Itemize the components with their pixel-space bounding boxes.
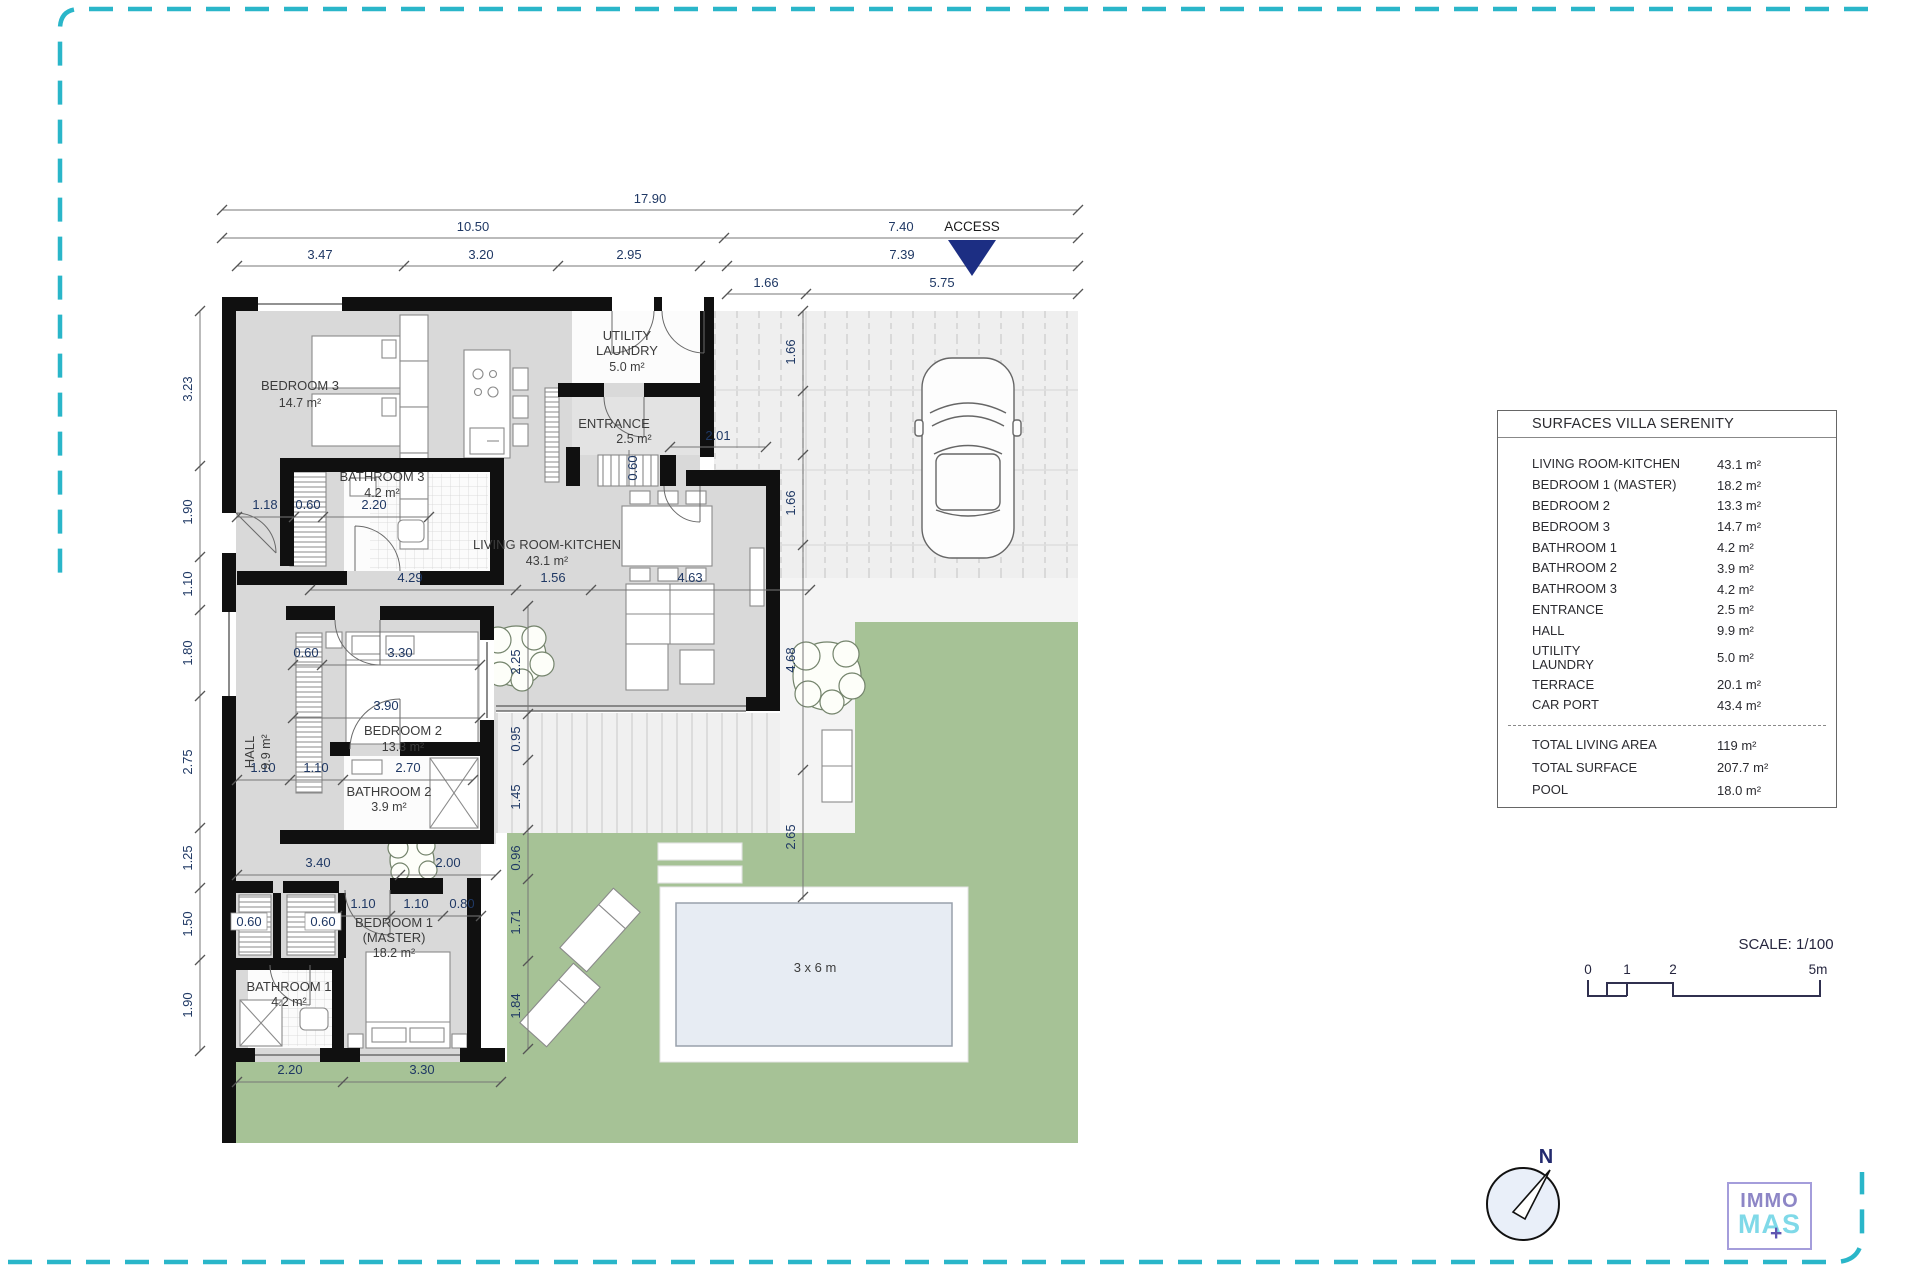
row-value: 43.4 m² [1717,698,1836,713]
dim-label: 3.30 [387,645,412,660]
dim-label: 0.60 [295,497,320,512]
dim-label: 4.68 [783,647,798,672]
bed-double [348,952,467,1048]
room-name: BATHROOM 1 [247,979,332,994]
dim-label: 4.63 [677,570,702,585]
dim-label: 1.66 [753,275,778,290]
table-row: ENTRANCE2.5 m² [1498,600,1836,621]
dim-label: 10.50 [457,219,490,234]
row-label: LIVING ROOM-KITCHEN [1498,457,1717,471]
dim-label: 4.29 [397,570,422,585]
row-value: 14.7 m² [1717,519,1836,534]
north-label: N [1539,1146,1553,1168]
dim-label: 1.18 [252,497,277,512]
dim-label: 5.75 [929,275,954,290]
table-total-row: TOTAL SURFACE207.7 m² [1498,756,1836,779]
room-name: BATHROOM 3 [340,469,425,484]
table-row: BATHROOM 34.2 m² [1498,579,1836,600]
row-label-line1: UTILITY [1532,643,1580,658]
row-label: TOTAL LIVING AREA [1498,738,1717,752]
dim-label: 0.60 [236,914,261,929]
dim-label: 3.90 [373,698,398,713]
table-total-row: POOL18.0 m² [1498,779,1836,802]
row-value: 5.0 m² [1717,650,1836,665]
row-label-line2: LAUNDRY [1532,657,1594,672]
immomas-logo: IMMO MAS+ [1727,1182,1812,1250]
scale-tick-label: 2 [1669,962,1677,977]
scale-tick-label: 0 [1584,962,1592,977]
table-total-row: TOTAL LIVING AREA119 m² [1498,734,1836,757]
dim-label: 3.47 [307,247,332,262]
dim-label: 2.95 [616,247,641,262]
dim-label: 1.80 [180,640,195,665]
table-row: TERRACE20.1 m² [1498,674,1836,695]
dim-label: 2.65 [783,824,798,849]
table-row: UTILITYLAUNDRY 5.0 m² [1498,641,1836,674]
dim-label: 1.10 [303,760,328,775]
table-row: LIVING ROOM-KITCHEN43.1 m² [1498,454,1836,475]
row-value: 13.3 m² [1717,498,1836,513]
table-separator [1508,725,1826,726]
scale-label: SCALE: 1/100 [1738,936,1833,953]
room-area: 4.2 m² [364,486,399,500]
row-label: UTILITYLAUNDRY [1498,644,1717,672]
room-area: 3.9 m² [371,800,406,814]
dim-label: 0.96 [508,845,523,870]
car-icon [915,358,1021,558]
dim-label: 7.39 [889,247,914,262]
room-area: 9.9 m² [259,734,273,769]
wardrobe [400,315,428,549]
room-name: LAUNDRY [596,343,658,358]
row-value: 119 m² [1717,738,1836,753]
room-name: ENTRANCE [578,416,650,431]
row-value: 207.7 m² [1717,760,1836,775]
row-label: BATHROOM 1 [1498,541,1717,555]
room-area: 43.1 m² [526,554,568,568]
row-label: BEDROOM 2 [1498,499,1717,513]
dim-label: 2.25 [508,649,523,674]
surfaces-table: SURFACES VILLA SERENITY LIVING ROOM-KITC… [1497,410,1837,808]
row-value: 3.9 m² [1717,561,1836,576]
dim-label: 2.01 [705,428,730,443]
dim-label: 2.75 [180,749,195,774]
dim-label: 1.66 [783,339,798,364]
row-label: BATHROOM 2 [1498,561,1717,575]
room-name: BEDROOM 3 [261,378,339,393]
table-row: BEDROOM 1 (MASTER)18.2 m² [1498,475,1836,496]
room-name: UTILITY [603,328,652,343]
row-label: HALL [1498,624,1717,638]
scale-tick-label: 1 [1623,962,1631,977]
dining-table [622,491,712,581]
room-name: BATHROOM 2 [347,784,432,799]
pantry-shelves [545,388,559,482]
row-label: TERRACE [1498,678,1717,692]
access-arrow-icon [948,240,996,276]
row-label: ENTRANCE [1498,603,1717,617]
dim-label: 1.10 [350,896,375,911]
row-value: 43.1 m² [1717,457,1836,472]
dim-label: 1.90 [180,499,195,524]
row-label: CAR PORT [1498,698,1717,712]
access-marker: ACCESS [944,219,1000,276]
room-area: 2.5 m² [616,432,651,446]
table-row: BATHROOM 23.9 m² [1498,558,1836,579]
terrace-decking [496,713,780,833]
dim-label: 1.56 [540,570,565,585]
dim-label: 2.00 [435,855,460,870]
room-name: BEDROOM 1 [355,915,433,930]
row-value: 18.0 m² [1717,783,1836,798]
room-area: 13.3 m² [382,740,424,754]
row-value: 2.5 m² [1717,602,1836,617]
room-area: 18.2 m² [373,946,415,960]
room-name: (MASTER) [363,930,426,945]
logo-line2: MAS+ [1729,1211,1810,1237]
dim-label: 17.90 [634,191,667,206]
dim-label: 1.10 [403,896,428,911]
dim-label: 0.80 [449,896,474,911]
row-value: 18.2 m² [1717,478,1836,493]
room-name: HALL [242,736,257,769]
dim-label: 1.90 [180,992,195,1017]
row-value: 20.1 m² [1717,677,1836,692]
garden-grass [855,622,1078,1143]
surfaces-table-title: SURFACES VILLA SERENITY [1498,411,1836,438]
dim-label: 1.45 [508,784,523,809]
row-value: 4.2 m² [1717,582,1836,597]
row-label: TOTAL SURFACE [1498,761,1717,775]
row-label: BEDROOM 1 (MASTER) [1498,478,1717,492]
row-label: POOL [1498,783,1717,797]
row-label: BEDROOM 3 [1498,520,1717,534]
dim-label: 1.84 [508,993,523,1018]
table-row: BEDROOM 213.3 m² [1498,496,1836,517]
dim-label: 2.20 [277,1062,302,1077]
table-row: BATHROOM 14.2 m² [1498,537,1836,558]
garden-bench [822,730,852,802]
pool: 3 x 6 m [660,887,968,1062]
room-area: 4.2 m² [271,995,306,1009]
pool-mat [658,843,742,860]
dim-label: 3.23 [180,376,195,401]
access-label: ACCESS [944,219,1000,234]
dim-label: 1.10 [180,571,195,596]
room-area: 5.0 m² [609,360,644,374]
row-value: 4.2 m² [1717,540,1836,555]
dim-label: 3.20 [468,247,493,262]
dim-label: 3.30 [409,1062,434,1077]
table-row: CAR PORT43.4 m² [1498,695,1836,716]
dim-label: 1.71 [508,909,523,934]
dim-label: 1.25 [180,845,195,870]
scale-tick-label: 5m [1809,962,1828,977]
table-row: BEDROOM 314.7 m² [1498,516,1836,537]
room-area: 14.7 m² [279,396,321,410]
dim-label: 3.40 [305,855,330,870]
floorplan-sheet: 3 x 6 m [0,0,1920,1280]
dim-label: 2.70 [395,760,420,775]
logo-line1: IMMO [1729,1191,1810,1211]
pool-size-label: 3 x 6 m [794,960,837,975]
dim-label: 0.60 [310,914,335,929]
row-value: 9.9 m² [1717,623,1836,638]
dim-label: 0.60 [625,455,640,480]
row-label: BATHROOM 3 [1498,582,1717,596]
room-name: BEDROOM 2 [364,723,442,738]
pool-mat [658,866,742,883]
dim-label: 0.60 [293,645,318,660]
tv-unit [750,548,764,606]
dim-label: 1.50 [180,911,195,936]
scale-bar-graphic [1588,980,1820,996]
scale-bar: SCALE: 1/100 0 1 2 5m [1584,936,1833,996]
north-arrow: N [1487,1146,1559,1240]
table-row: HALL9.9 m² [1498,620,1836,641]
dim-label: 0.95 [508,726,523,751]
logo-plus-icon: + [1770,1221,1783,1247]
dim-label: 1.66 [783,490,798,515]
room-name: LIVING ROOM-KITCHEN [473,537,621,552]
dim-label: 7.40 [888,219,913,234]
